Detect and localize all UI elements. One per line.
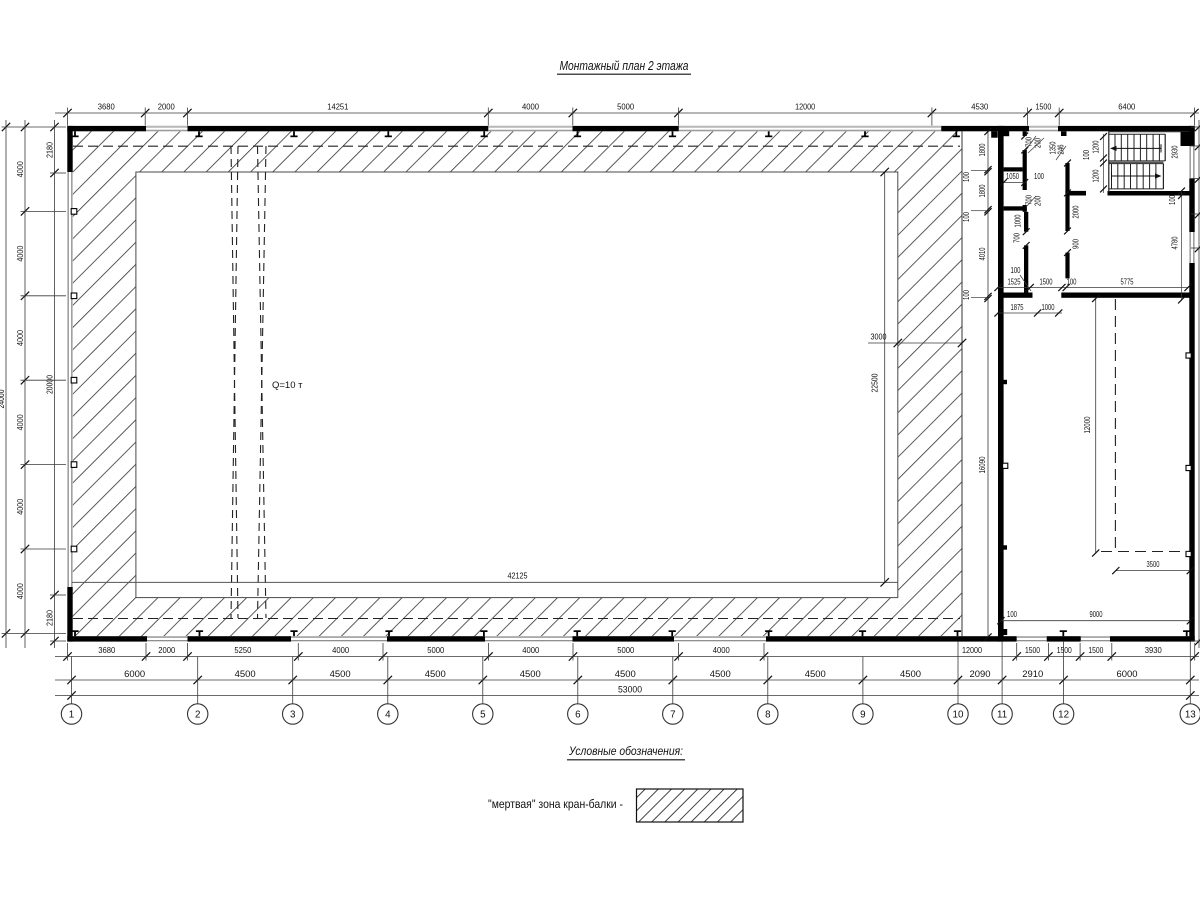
- svg-text:1: 1: [69, 709, 74, 720]
- svg-text:4010: 4010: [978, 247, 987, 260]
- svg-text:1800: 1800: [978, 184, 987, 197]
- svg-text:4000: 4000: [332, 645, 349, 655]
- svg-text:100: 100: [1168, 194, 1177, 205]
- svg-text:1800: 1800: [978, 143, 987, 156]
- svg-text:2910: 2910: [1022, 668, 1043, 679]
- svg-text:22500: 22500: [870, 373, 880, 392]
- svg-text:12000: 12000: [962, 645, 982, 655]
- svg-text:4000: 4000: [15, 499, 25, 515]
- svg-text:4500: 4500: [520, 668, 541, 679]
- svg-text:5000: 5000: [617, 645, 634, 655]
- svg-text:1500: 1500: [1088, 645, 1103, 655]
- svg-text:12000: 12000: [1083, 416, 1092, 434]
- svg-text:Условные обозначения:: Условные обозначения:: [568, 744, 683, 758]
- svg-text:13: 13: [1185, 709, 1196, 720]
- svg-text:4500: 4500: [330, 668, 351, 679]
- svg-text:4530: 4530: [971, 102, 988, 112]
- svg-text:3: 3: [290, 709, 296, 720]
- svg-text:11: 11: [997, 709, 1007, 720]
- svg-text:6: 6: [575, 709, 581, 720]
- svg-text:4: 4: [385, 709, 391, 720]
- svg-text:3500: 3500: [1147, 560, 1160, 569]
- svg-text:4000: 4000: [15, 583, 25, 599]
- svg-text:6400: 6400: [1118, 102, 1135, 112]
- svg-text:9000: 9000: [1090, 610, 1103, 619]
- svg-text:7: 7: [670, 709, 675, 720]
- svg-text:24000: 24000: [0, 389, 6, 408]
- svg-text:3680: 3680: [98, 102, 115, 112]
- svg-text:4500: 4500: [425, 668, 446, 679]
- svg-text:1500: 1500: [1040, 278, 1053, 287]
- svg-text:6000: 6000: [1117, 668, 1138, 679]
- svg-text:2180: 2180: [45, 610, 55, 626]
- svg-text:8: 8: [765, 709, 771, 720]
- svg-text:5: 5: [480, 709, 486, 720]
- svg-text:6000: 6000: [124, 668, 145, 679]
- svg-text:12: 12: [1058, 709, 1069, 720]
- svg-text:4500: 4500: [235, 668, 256, 679]
- svg-text:4000: 4000: [15, 414, 25, 430]
- svg-text:2000: 2000: [158, 102, 175, 112]
- svg-text:2090: 2090: [970, 668, 991, 679]
- svg-text:Монтажный план 2 этажа: Монтажный план 2 этажа: [560, 59, 689, 73]
- svg-text:5000: 5000: [617, 102, 634, 112]
- svg-text:1500: 1500: [1035, 102, 1051, 112]
- svg-text:100: 100: [962, 171, 971, 182]
- svg-text:4000: 4000: [522, 645, 539, 655]
- svg-text:3930: 3930: [1145, 645, 1162, 655]
- svg-text:900: 900: [1072, 238, 1081, 249]
- svg-text:1000: 1000: [1042, 303, 1055, 312]
- svg-text:4500: 4500: [615, 668, 636, 679]
- svg-text:5250: 5250: [234, 645, 251, 655]
- svg-text:42125: 42125: [508, 571, 528, 581]
- svg-text:10: 10: [953, 709, 964, 720]
- svg-text:4500: 4500: [805, 668, 826, 679]
- svg-text:4000: 4000: [713, 645, 730, 655]
- svg-text:14251: 14251: [327, 102, 348, 112]
- svg-text:1500: 1500: [1057, 645, 1072, 655]
- svg-text:2930: 2930: [1171, 145, 1180, 158]
- svg-text:1875: 1875: [1011, 303, 1024, 312]
- svg-text:4780: 4780: [1171, 236, 1180, 249]
- svg-text:9: 9: [860, 709, 865, 720]
- svg-text:2000: 2000: [158, 645, 175, 655]
- svg-text:5000: 5000: [427, 645, 444, 655]
- svg-text:100: 100: [962, 289, 971, 300]
- svg-text:2180: 2180: [45, 142, 55, 158]
- svg-text:"мертвая" зона кран-балки -: "мертвая" зона кран-балки -: [488, 797, 623, 811]
- svg-text:Q=10 т: Q=10 т: [272, 380, 303, 391]
- svg-text:12000: 12000: [795, 102, 815, 112]
- svg-text:100: 100: [1011, 266, 1022, 275]
- svg-text:16090: 16090: [978, 456, 987, 474]
- svg-text:100: 100: [1034, 172, 1045, 181]
- svg-text:1200: 1200: [1092, 140, 1101, 153]
- svg-text:20000: 20000: [45, 375, 55, 394]
- svg-text:1200: 1200: [1092, 169, 1101, 182]
- svg-text:3000: 3000: [871, 332, 887, 342]
- svg-text:1000: 1000: [1014, 214, 1023, 227]
- svg-text:100: 100: [1082, 149, 1091, 160]
- svg-text:1500: 1500: [1025, 645, 1040, 655]
- svg-text:100: 100: [962, 211, 971, 222]
- svg-text:4000: 4000: [522, 102, 539, 112]
- svg-text:1525: 1525: [1008, 278, 1021, 287]
- svg-text:3680: 3680: [98, 645, 115, 655]
- svg-text:53000: 53000: [618, 684, 642, 695]
- svg-text:4500: 4500: [710, 668, 731, 679]
- svg-text:4000: 4000: [15, 330, 25, 346]
- svg-text:4000: 4000: [15, 245, 25, 261]
- svg-text:4000: 4000: [15, 161, 25, 177]
- svg-text:4500: 4500: [900, 668, 921, 679]
- svg-text:2: 2: [195, 709, 200, 720]
- svg-text:700: 700: [1013, 232, 1022, 243]
- svg-text:5775: 5775: [1121, 278, 1134, 287]
- svg-text:1050: 1050: [1006, 172, 1019, 181]
- svg-text:2000: 2000: [1072, 205, 1081, 218]
- svg-text:100: 100: [1067, 278, 1078, 287]
- svg-text:100: 100: [1007, 610, 1018, 619]
